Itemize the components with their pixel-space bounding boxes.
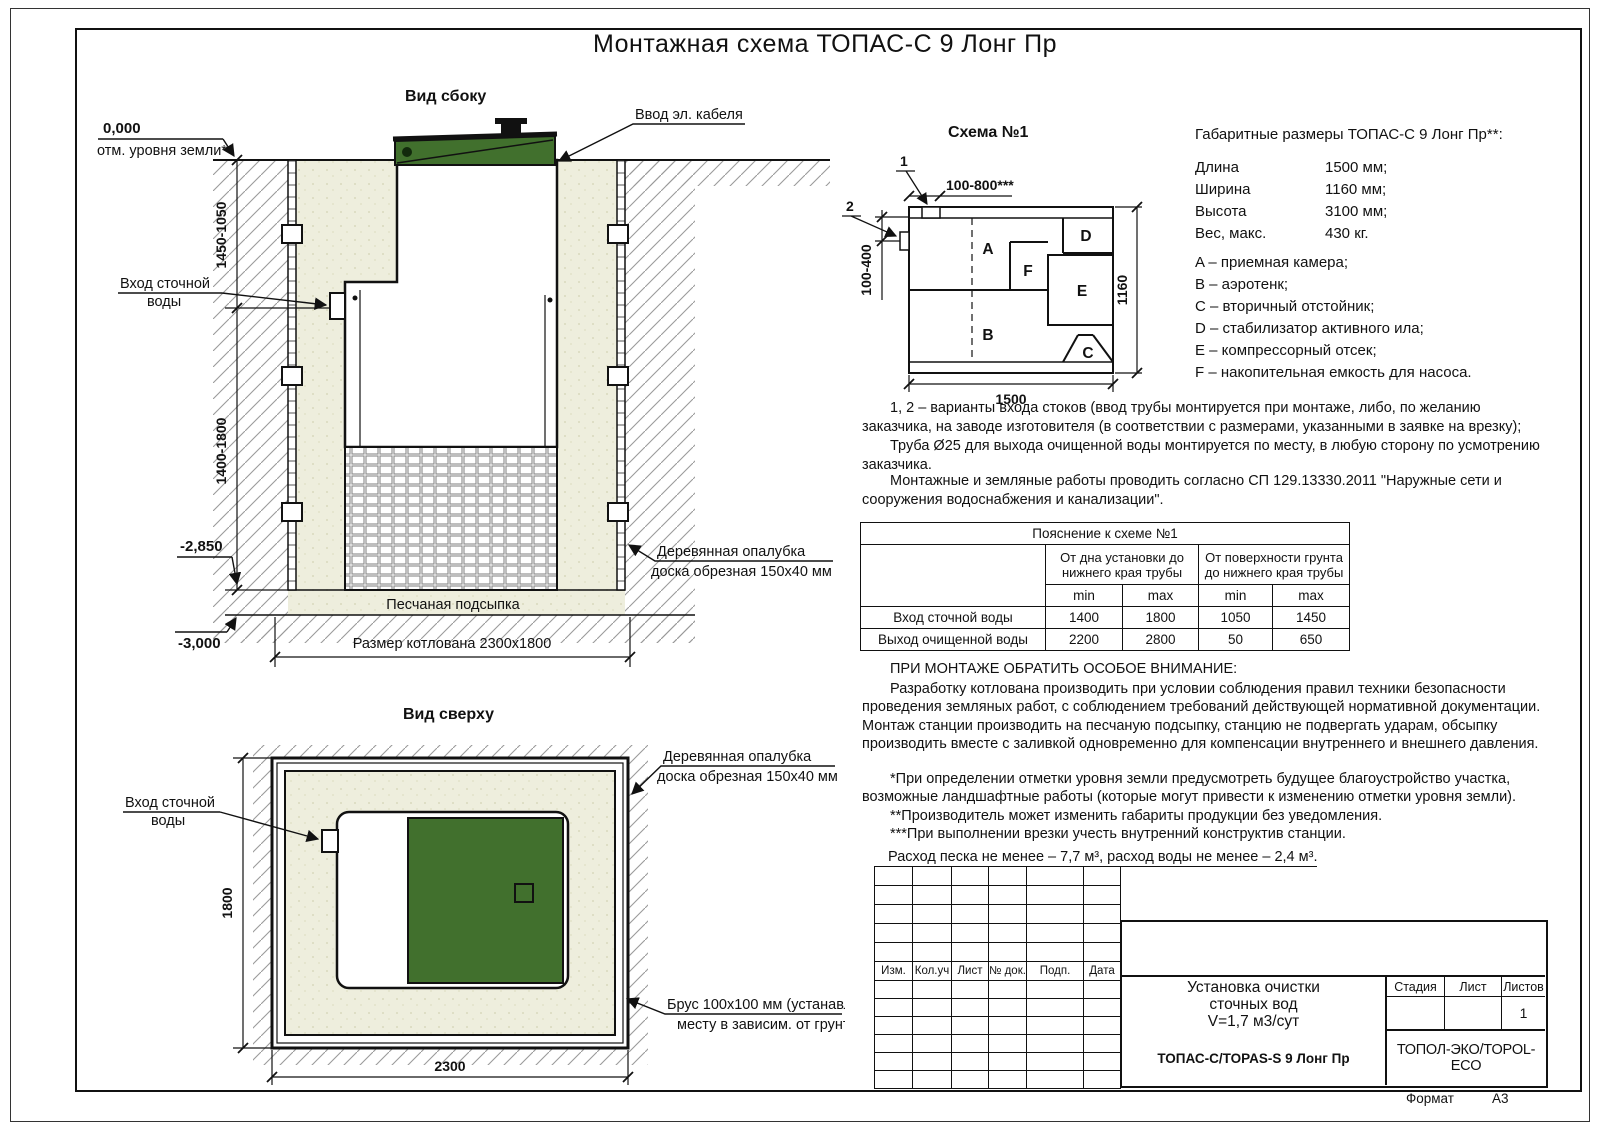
comp-e: E xyxy=(1077,283,1087,300)
formwork-label-line2: доска обрезная 150х40 мм xyxy=(651,564,832,580)
title-block: Установка очистки сточных вод V=1,7 м3/с… xyxy=(1120,920,1548,1088)
sheet-value xyxy=(1445,997,1502,1031)
min-header: min xyxy=(1199,585,1273,607)
doc-title-line2: сточных вод xyxy=(1209,996,1297,1013)
format-label: Формат xyxy=(1406,1091,1454,1106)
col-ndok: № док. xyxy=(989,962,1027,981)
cable-label: Ввод эл. кабеля xyxy=(635,107,743,123)
attention-paragraph: Разработку котлована производить при усл… xyxy=(862,680,1562,754)
max-header: max xyxy=(1123,585,1199,607)
comp-a: A xyxy=(982,241,993,258)
dim-row: Ширина1160 мм; xyxy=(1195,181,1555,203)
row-value: 2800 xyxy=(1123,629,1199,651)
consumption-text: Расход песка не менее – 7,7 м³, расход в… xyxy=(888,849,1317,867)
explanation-table: Пояснение к схеме №1 От дна установки до… xyxy=(860,522,1350,651)
dim-1800: 1800 xyxy=(219,887,235,918)
min-header: min xyxy=(1046,585,1123,607)
col-list: Лист xyxy=(952,962,989,981)
zero-sub: отм. уровня земли* xyxy=(97,143,227,159)
row-value: 2200 xyxy=(1046,629,1123,651)
dim-lower-text: 1400-1800 xyxy=(213,417,229,484)
dim-name: Длина xyxy=(1195,159,1325,181)
formwork-label-line1: Деревянная опалубка xyxy=(657,544,806,560)
row-value: 1800 xyxy=(1123,607,1199,629)
doc-title-line1: Установка очистки xyxy=(1187,979,1320,996)
model-cell: ТОПАС-С/TOPAS-S 9 Лонг Пр xyxy=(1122,1031,1387,1085)
sheets-value: 1 xyxy=(1502,997,1545,1031)
table-row: Вход сточной воды 1400 1800 1050 1450 xyxy=(861,607,1350,629)
table-corner-cell xyxy=(861,545,1046,607)
dim-right-text: 1160 xyxy=(1114,275,1130,306)
legend-item: E – компрессорный отсек; xyxy=(1195,340,1472,362)
inlet-variant-1-stub xyxy=(922,207,940,218)
dim-row: Высота3100 мм; xyxy=(1195,203,1555,225)
table-group1: От дна установки до нижнего края трубы xyxy=(1046,545,1199,585)
inlet-pipe-stub xyxy=(330,293,345,319)
document-title-cell: Установка очистки сточных вод V=1,7 м3/с… xyxy=(1122,977,1387,1031)
inlet-label-line2: воды xyxy=(147,294,181,310)
side-view-drawing: 1450-1050 1400-1800 0,000 отм. уровня зе… xyxy=(85,95,845,680)
inlet-pipe-stub xyxy=(322,830,338,852)
works-note: Монтажные и земляные работы проводить со… xyxy=(862,472,1554,510)
legend-item: C – вторичный отстойник; xyxy=(1195,296,1472,318)
row-value: 650 xyxy=(1273,629,1350,651)
drawing-sheet: { "colors": {"green": "#41702d", "sand":… xyxy=(0,0,1600,1131)
note-variants: 1, 2 – варианты входа стоков (ввод трубы… xyxy=(862,399,1554,437)
note-works: Монтажные и земляные работы проводить со… xyxy=(862,472,1554,510)
formwork-label-line2: доска обрезная 150х40 мм xyxy=(657,769,838,785)
row-value: 1400 xyxy=(1046,607,1123,629)
dim-left-text: 100-400 xyxy=(858,244,874,296)
inlet-variant-notes: 1, 2 – варианты входа стоков (ввод трубы… xyxy=(862,399,1554,475)
row-value: 1450 xyxy=(1273,607,1350,629)
dim-value: 1500 мм; xyxy=(1325,159,1387,181)
formwork-label-line1: Деревянная опалубка xyxy=(663,749,812,765)
attention-note1: *При определении отметки уровня земли пр… xyxy=(862,770,1562,807)
beam-label-line2: месту в зависим. от грунта) xyxy=(677,1017,845,1033)
legend-item: F – накопительная емкость для насоса. xyxy=(1195,362,1472,384)
revision-table: Изм. Кол.уч Лист № док. Подп. Дата xyxy=(874,866,1121,1089)
dim-name: Высота xyxy=(1195,203,1325,225)
row-value: 1050 xyxy=(1199,607,1273,629)
table-group2: От поверхности грунта до нижнего края тр… xyxy=(1199,545,1350,585)
overall-dimensions-title: Габаритные размеры ТОПАС-С 9 Лонг Пр**: xyxy=(1195,126,1555,143)
legend-item: D – стабилизатор активного ила; xyxy=(1195,318,1472,340)
legend-item: B – аэротенк; xyxy=(1195,274,1472,296)
note-pipe: Труба Ø25 для выхода очищенной воды монт… xyxy=(862,437,1554,475)
dim-upper-text: 1450-1050 xyxy=(213,201,229,268)
station-lid-top xyxy=(408,818,563,983)
top-view-drawing: 1800 2300 Вход сточной воды Деревянная о… xyxy=(85,700,845,1100)
sand-bedding-label: Песчаная подсыпка xyxy=(386,597,520,613)
comp-b: B xyxy=(982,327,993,344)
revision-header-row: Изм. Кол.уч Лист № док. Подп. Дата xyxy=(875,962,1121,981)
attention-note2: **Производитель может изменить габариты … xyxy=(862,807,1562,826)
pit-size-text: Размер котлована 2300х1800 xyxy=(353,636,552,652)
company-cell: ТОПОЛ-ЭКО/TOPOL-ECO xyxy=(1387,1031,1545,1085)
title-block-empty-cell xyxy=(1122,922,1545,977)
inlet-label-line1: Вход сточной xyxy=(120,276,210,292)
dim-top-text: 100-800*** xyxy=(946,177,1014,193)
schema1-drawing: A B C D E F 100-800*** 100-400 1500 1160… xyxy=(830,150,1160,420)
compartment-legend: A – приемная камера; B – аэротенк; C – в… xyxy=(1195,252,1472,384)
dim-row: Длина1500 мм; xyxy=(1195,159,1555,181)
dim-name: Вес, макс. xyxy=(1195,225,1325,247)
mark-2: 2 xyxy=(846,198,854,214)
mark-2850: -2,850 xyxy=(180,538,223,555)
overall-dimensions: Габаритные размеры ТОПАС-С 9 Лонг Пр**: … xyxy=(1195,126,1555,247)
col-podp: Подп. xyxy=(1027,962,1084,981)
consumption-note: Расход песка не менее – 7,7 м³, расход в… xyxy=(888,849,1317,865)
beam-label-line1: Брус 100х100 мм (устанавл. по xyxy=(667,997,845,1013)
comp-f: F xyxy=(1023,263,1032,280)
sheets-header: Листов xyxy=(1502,977,1545,997)
inlet-label-line2: воды xyxy=(151,813,185,829)
dim-value: 430 кг. xyxy=(1325,225,1369,247)
inlet-label-line1: Вход сточной xyxy=(125,795,215,811)
table-title: Пояснение к схеме №1 xyxy=(861,523,1350,545)
stage-value xyxy=(1387,997,1445,1031)
attention-title: ПРИ МОНТАЖЕ ОБРАТИТЬ ОСОБОЕ ВНИМАНИЕ: xyxy=(862,660,1562,679)
inlet-variant-2-stub xyxy=(900,232,909,250)
max-header: max xyxy=(1273,585,1350,607)
doc-title-line3: V=1,7 м3/сут xyxy=(1208,1013,1299,1030)
dim-value: 1160 мм; xyxy=(1325,181,1386,203)
sheet-header: Лист xyxy=(1445,977,1502,997)
col-koluch: Кол.уч xyxy=(913,962,952,981)
station-green-lid xyxy=(393,118,557,165)
mark-3000: -3,000 xyxy=(178,635,221,652)
comp-c: C xyxy=(1082,345,1093,362)
schema1-title: Схема №1 xyxy=(948,124,1028,142)
lid-vent xyxy=(501,122,521,136)
legend-item: A – приемная камера; xyxy=(1195,252,1472,274)
row-name: Вход сточной воды xyxy=(861,607,1046,629)
stage-header: Стадия xyxy=(1387,977,1445,997)
row-name: Выход очищенной воды xyxy=(861,629,1046,651)
comp-d: D xyxy=(1080,228,1091,245)
attention-note3: ***При выполнении врезки учесть внутренн… xyxy=(862,825,1562,844)
dim-value: 3100 мм; xyxy=(1325,203,1387,225)
row-value: 50 xyxy=(1199,629,1273,651)
mark-1: 1 xyxy=(900,153,908,169)
dim-name: Ширина xyxy=(1195,181,1325,203)
table-row: Выход очищенной воды 2200 2800 50 650 xyxy=(861,629,1350,651)
col-data: Дата xyxy=(1084,962,1121,981)
attention-block: ПРИ МОНТАЖЕ ОБРАТИТЬ ОСОБОЕ ВНИМАНИЕ: Ра… xyxy=(862,660,1562,844)
station-lower-section xyxy=(345,447,557,590)
col-izm: Изм. xyxy=(875,962,913,981)
dim-2300: 2300 xyxy=(434,1058,465,1074)
format-value: А3 xyxy=(1492,1091,1509,1106)
zero-mark: 0,000 xyxy=(103,120,141,137)
dim-row: Вес, макс.430 кг. xyxy=(1195,225,1555,247)
station-top xyxy=(322,812,568,988)
sheet-title: Монтажная схема ТОПАС-С 9 Лонг Пр xyxy=(585,30,1065,59)
